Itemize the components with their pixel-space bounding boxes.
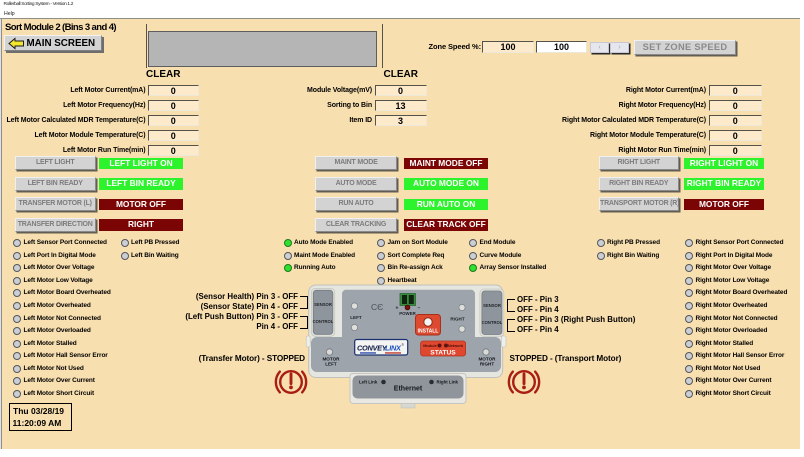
svg-text:Right Link: Right Link	[437, 380, 459, 385]
svg-text:−: −	[418, 306, 421, 312]
svg-text:CONTROL: CONTROL	[313, 319, 334, 324]
svg-text:+: +	[396, 306, 399, 312]
svg-text:Left Link: Left Link	[359, 380, 378, 385]
svg-text:Network: Network	[448, 343, 464, 348]
svg-text:Ethernet: Ethernet	[394, 386, 423, 393]
svg-text:CONTROL: CONTROL	[482, 320, 503, 325]
svg-text:Module: Module	[423, 343, 437, 348]
svg-text:INSTALL: INSTALL	[418, 329, 439, 335]
svg-text:STATUS: STATUS	[430, 350, 456, 357]
svg-text:LEFT: LEFT	[325, 362, 337, 367]
svg-text:RIGHT: RIGHT	[480, 362, 494, 367]
svg-text:CONVEY: CONVEY	[357, 344, 388, 353]
svg-text:LINX: LINX	[385, 344, 402, 353]
svg-text:RIGHT: RIGHT	[450, 317, 464, 322]
svg-text:CЄ: CЄ	[371, 302, 383, 312]
svg-text:SENSOR: SENSOR	[483, 303, 501, 308]
svg-text:LEFT: LEFT	[350, 315, 362, 320]
svg-text:POWER: POWER	[399, 311, 416, 316]
svg-text:SENSOR: SENSOR	[314, 302, 332, 307]
